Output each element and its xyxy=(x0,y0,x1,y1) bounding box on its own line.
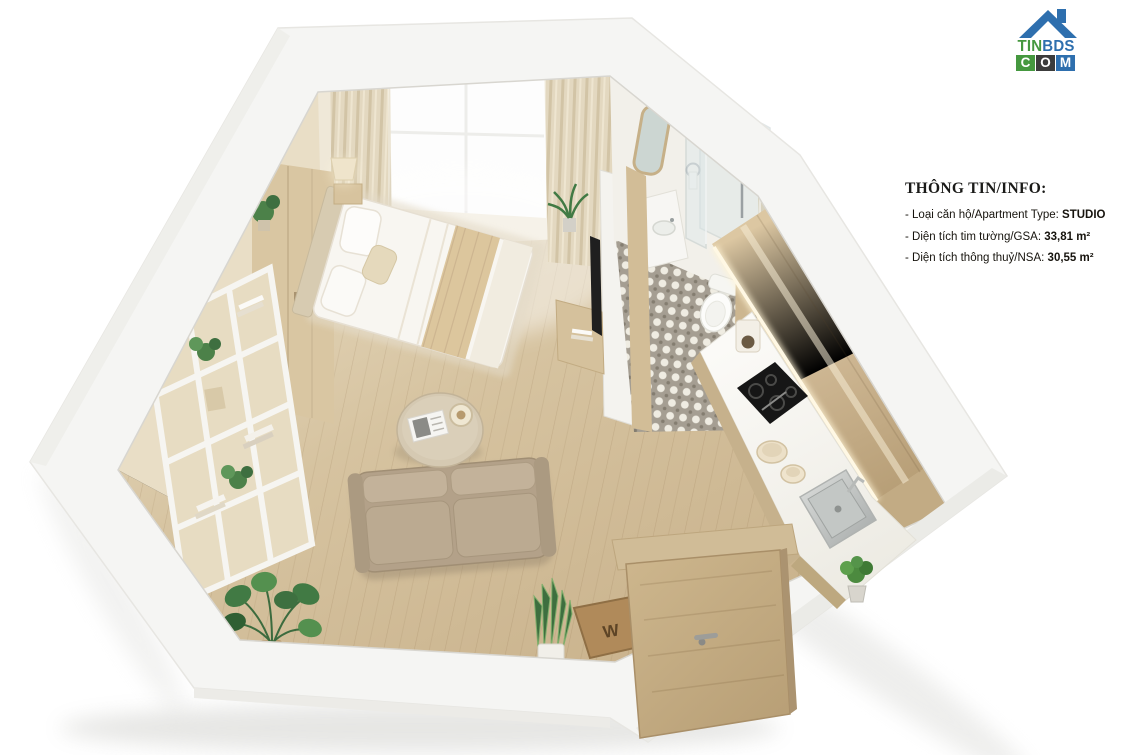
info-panel: THÔNG TIN/INFO: - Loại căn hộ/Apartment … xyxy=(905,180,1123,270)
logo-tile-m: M xyxy=(1056,55,1075,71)
info-line-apartment-type: - Loại căn hộ/Apartment Type: STUDIO xyxy=(905,205,1123,227)
info-line-gsa: - Diện tích tim tường/GSA: 33,81 m² xyxy=(905,227,1123,249)
apartment-cutaway-render: W xyxy=(0,0,1125,755)
info-label: - Diện tích tim tường/GSA: xyxy=(905,231,1044,243)
sofa xyxy=(347,456,558,581)
info-line-nsa: - Diện tích thông thuỷ/NSA: 30,55 m² xyxy=(905,248,1123,270)
logo-text-line1: TINBDS xyxy=(1016,39,1076,54)
coffee-maker xyxy=(736,320,760,352)
info-label: - Diện tích thông thuỷ/NSA: xyxy=(905,252,1048,264)
info-value: STUDIO xyxy=(1062,209,1105,221)
real-estate-floorplan-graphic: W xyxy=(0,0,1125,755)
info-label: - Loại căn hộ/Apartment Type: xyxy=(905,209,1062,221)
logo-tile-c: C xyxy=(1016,55,1035,71)
logo-house-icon xyxy=(1018,7,1078,39)
logo-tile-o: O xyxy=(1036,55,1055,71)
info-value: 30,55 m² xyxy=(1048,252,1094,264)
entrance-door xyxy=(612,524,798,738)
logo-tin: TIN xyxy=(1018,38,1043,55)
logo-bds: BDS xyxy=(1042,38,1074,55)
info-title: THÔNG TIN/INFO: xyxy=(905,180,1123,198)
tinbds-logo[interactable]: TINBDS C O M xyxy=(1016,7,1080,71)
info-value: 33,81 m² xyxy=(1044,231,1090,243)
logo-text-line2: C O M xyxy=(1016,55,1080,71)
